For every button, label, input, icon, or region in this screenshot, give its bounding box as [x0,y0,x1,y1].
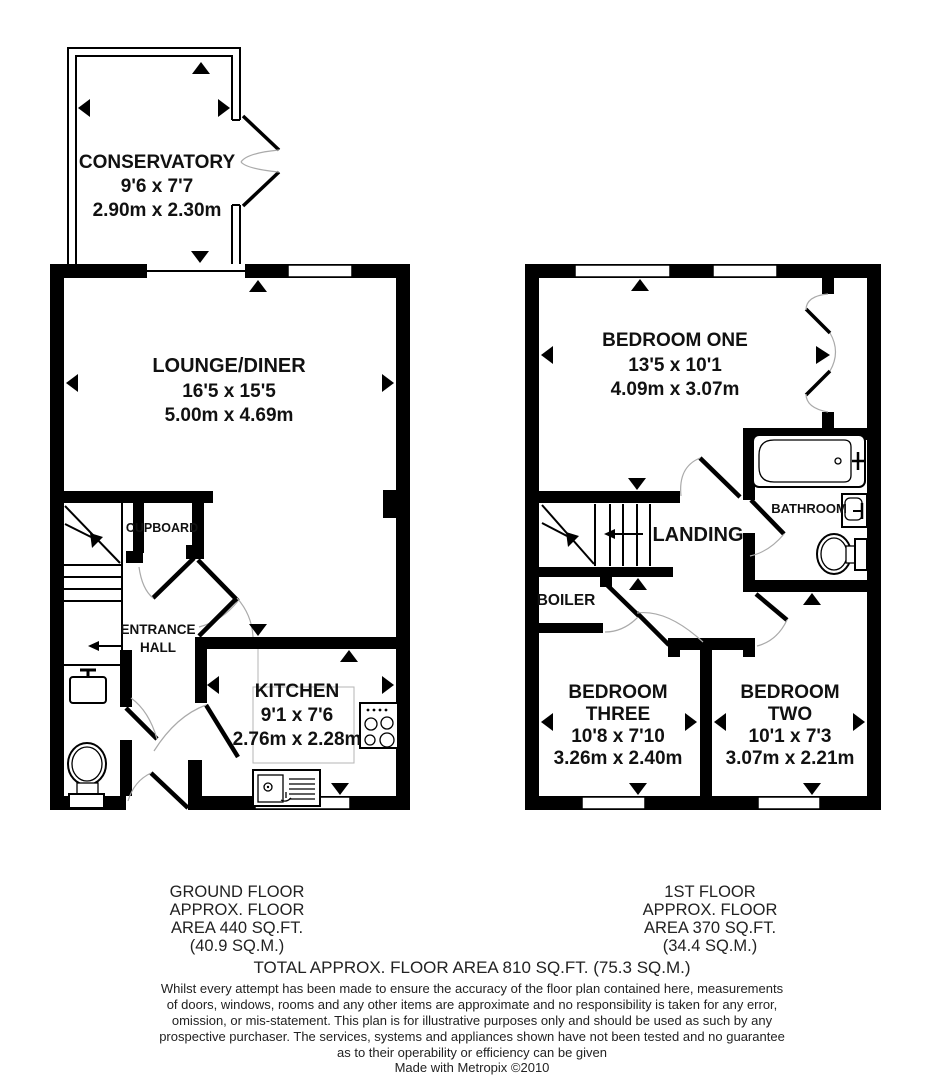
arrow-left-icon [78,99,90,117]
arrow-up-icon [249,280,267,292]
arrow-down-icon [191,251,209,263]
conservatory-door-leaf [243,172,279,206]
first-floor-area-4: (34.4 SQ.M.) [663,937,757,955]
landing-label: LANDING [652,524,743,546]
bedroom-three-door-leaf [637,613,669,645]
lounge-window [288,265,352,277]
cupboard-door-leaf [153,558,194,598]
bedroom-two-dims-imperial: 10'1 x 7'3 [749,726,832,747]
bathroom-toilet [817,534,867,574]
first-floor-plan: BEDROOM ONE 13'5 x 10'1 4.09m x 3.07m LA… [525,264,881,810]
bedroom-one-dims-imperial: 13'5 x 10'1 [628,355,722,376]
bedroom-two-dims-metric: 3.07m x 2.21m [726,748,855,769]
bedroom-one-door-leaf [700,458,740,497]
ground-floor-plan: CONSERVATORY 9'6 x 7'7 2.90m x 2.30m LOU… [50,48,410,810]
disclaimer-line-1: Whilst every attempt has been made to en… [161,981,784,996]
bedroom-two-door-leaf [756,594,787,620]
wc-door-leaf [126,708,157,739]
cupboard-label: CUPBOARD [126,521,198,535]
conservatory-dims-imperial: 9'6 x 7'7 [121,176,193,197]
arrow-left-icon [66,374,78,392]
lounge-dims-metric: 5.00m x 4.69m [165,405,294,426]
conservatory-door-leaf [243,116,279,150]
arrow-up-icon [631,279,649,291]
boiler-label: BOILER [537,592,596,609]
arrow-up-icon [629,578,647,590]
kitchen-sink [253,770,320,806]
lounge-label: LOUNGE/DINER [152,355,306,377]
first-floor-area-2: APPROX. FLOOR [643,901,778,919]
conservatory-dims-metric: 2.90m x 2.30m [93,200,222,221]
bedroom-three-label-1: BEDROOM [568,682,667,703]
boiler-door-arc [605,616,639,632]
cupboard-door-arc [139,567,153,598]
bedroom-three-dims-imperial: 10'8 x 7'10 [571,726,665,747]
arrow-right-icon [816,346,830,364]
arrow-up-icon [340,650,358,662]
arrow-down-icon [249,624,267,636]
credit-label: Made with Metropix ©2010 [395,1060,550,1075]
arrow-left-icon [541,346,553,364]
conservatory-door-arc [241,162,279,172]
arrow-right-icon [218,99,230,117]
lounge-door-arc [237,598,253,637]
arrow-up-icon [803,593,821,605]
bedroom-two-label-2: TWO [768,704,812,725]
ground-floor-stairs [64,503,122,665]
entrance-arrow-icon [88,641,99,651]
wardrobe-door-leaf [806,371,830,395]
hall-door-leaf [198,560,238,601]
bedroom-one-dims-metric: 4.09m x 3.07m [611,379,740,400]
bedroom-two-window [758,797,820,809]
kitchen-hob [360,703,398,748]
lounge-door-leaf [199,598,237,636]
first-floor-stairs [542,504,650,566]
footer: GROUND FLOOR APPROX. FLOOR AREA 440 SQ.F… [159,883,785,1075]
entrance-hall-label-2: HALL [140,640,176,655]
ground-floor-area-3: AREA 440 SQ.FT. [171,919,303,937]
stairs-up-arrow [65,524,91,537]
bedroom-one-window-2 [713,265,777,277]
total-area-label: TOTAL APPROX. FLOOR AREA 810 SQ.FT. (75.… [253,958,690,977]
bathroom-label: BATHROOM [771,501,847,516]
kitchen-door-arc [154,705,206,751]
arrow-down-icon [628,478,646,490]
bedroom-one-window [575,265,670,277]
floorplan-drawing: CONSERVATORY 9'6 x 7'7 2.90m x 2.30m LOU… [0,0,945,1080]
bedroom-three-window [582,797,645,809]
arrow-down-icon [331,783,349,795]
wc-basin [70,670,106,703]
entrance-hall-label-1: ENTRANCE [120,622,195,637]
ground-floor-area-4: (40.9 SQ.M.) [190,937,284,955]
kitchen-dims-imperial: 9'1 x 7'6 [261,705,333,726]
wardrobe-door-leaf [806,309,830,333]
ground-floor-area-1: GROUND FLOOR [170,883,305,901]
kitchen-dims-metric: 2.76m x 2.28m [233,729,362,750]
arrow-left-icon [541,713,553,731]
arrow-down-icon [803,783,821,795]
floorplan-page: CONSERVATORY 9'6 x 7'7 2.90m x 2.30m LOU… [0,0,945,1080]
bedroom-one-label: BEDROOM ONE [602,330,748,351]
bedroom-three-label-2: THREE [586,704,650,725]
arrow-right-icon [685,713,697,731]
wc-toilet [68,743,106,808]
kitchen-label: KITCHEN [255,681,339,702]
stairs-up-arrowhead [90,533,103,548]
arrow-right-icon [382,676,394,694]
bedroom-one-door-arc [681,458,700,496]
bedroom-two-label-1: BEDROOM [740,682,839,703]
bedroom-two-door-arc [757,620,787,646]
arrow-right-icon [382,374,394,392]
disclaimer-line-3: omission, or mis-statement. This plan is… [172,1013,773,1028]
bedroom-three-door-arc [637,613,703,642]
first-floor-area-3: AREA 370 SQ.FT. [644,919,776,937]
disclaimer-line-5: as to their operability or efficiency ca… [337,1045,607,1060]
bedroom-one-wardrobe [806,294,836,412]
first-floor-area-1: 1ST FLOOR [664,883,755,901]
bedroom-three-dims-metric: 3.26m x 2.40m [554,748,683,769]
lounge-dims-imperial: 16'5 x 15'5 [182,381,276,402]
bathtub [753,435,865,487]
conservatory-door-arc [241,150,279,162]
disclaimer-line-4: prospective purchaser. The services, sys… [159,1029,785,1044]
arrow-down-icon [629,783,647,795]
conservatory-label: CONSERVATORY [79,152,236,173]
bathroom-door-arc [750,534,784,556]
ground-floor-area-2: APPROX. FLOOR [170,901,305,919]
arrow-left-icon [714,713,726,731]
arrow-left-icon [207,676,219,694]
arrow-up-icon [192,62,210,74]
disclaimer-line-2: of doors, windows, rooms and any other i… [167,997,778,1012]
arrow-right-icon [853,713,865,731]
